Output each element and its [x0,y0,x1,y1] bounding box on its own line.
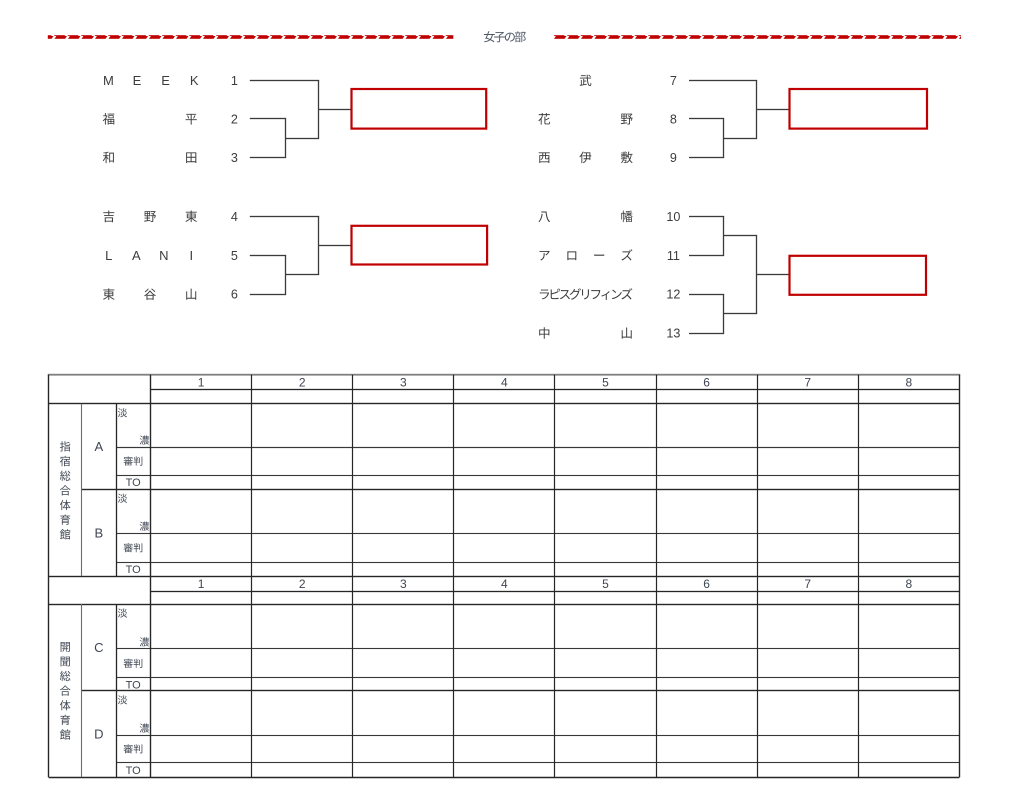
svg-text:7: 7 [804,577,811,591]
svg-text:9: 9 [670,151,677,165]
svg-text:2: 2 [299,375,306,389]
svg-text:10: 10 [666,210,680,224]
svg-text:3: 3 [400,375,407,389]
svg-text:7: 7 [670,74,677,88]
svg-text:4: 4 [501,577,508,591]
svg-text:C: C [94,640,103,655]
svg-text:N: N [159,248,168,263]
svg-text:2: 2 [231,112,238,126]
svg-text:12: 12 [666,288,680,302]
svg-text:K: K [190,73,199,88]
svg-text:5: 5 [231,249,238,263]
svg-text:1: 1 [231,74,238,88]
svg-text:E: E [133,73,142,88]
svg-text:1: 1 [198,375,205,389]
svg-text:D: D [94,727,103,742]
svg-text:TO: TO [126,477,142,489]
svg-text:13: 13 [666,327,680,341]
svg-text:M: M [103,73,114,88]
svg-text:B: B [94,525,103,540]
svg-text:4: 4 [501,375,508,389]
svg-text:3: 3 [400,577,407,591]
svg-text:TO: TO [126,679,142,691]
svg-text:7: 7 [804,375,811,389]
svg-text:8: 8 [905,577,912,591]
svg-text:6: 6 [703,577,710,591]
svg-text:I: I [189,248,193,263]
svg-text:11: 11 [667,249,680,263]
svg-text:8: 8 [905,375,912,389]
svg-text:L: L [105,248,112,263]
svg-text:3: 3 [231,151,238,165]
svg-text:4: 4 [231,210,238,224]
svg-text:6: 6 [703,375,710,389]
svg-text:2: 2 [299,577,306,591]
svg-text:6: 6 [231,288,238,302]
svg-text:TO: TO [126,765,142,777]
svg-text:A: A [94,439,103,454]
svg-text:8: 8 [670,112,677,126]
svg-text:A: A [132,248,141,263]
svg-text:E: E [161,73,170,88]
svg-text:5: 5 [602,375,609,389]
svg-text:5: 5 [602,577,609,591]
svg-text:TO: TO [126,564,142,576]
svg-text:1: 1 [198,577,205,591]
